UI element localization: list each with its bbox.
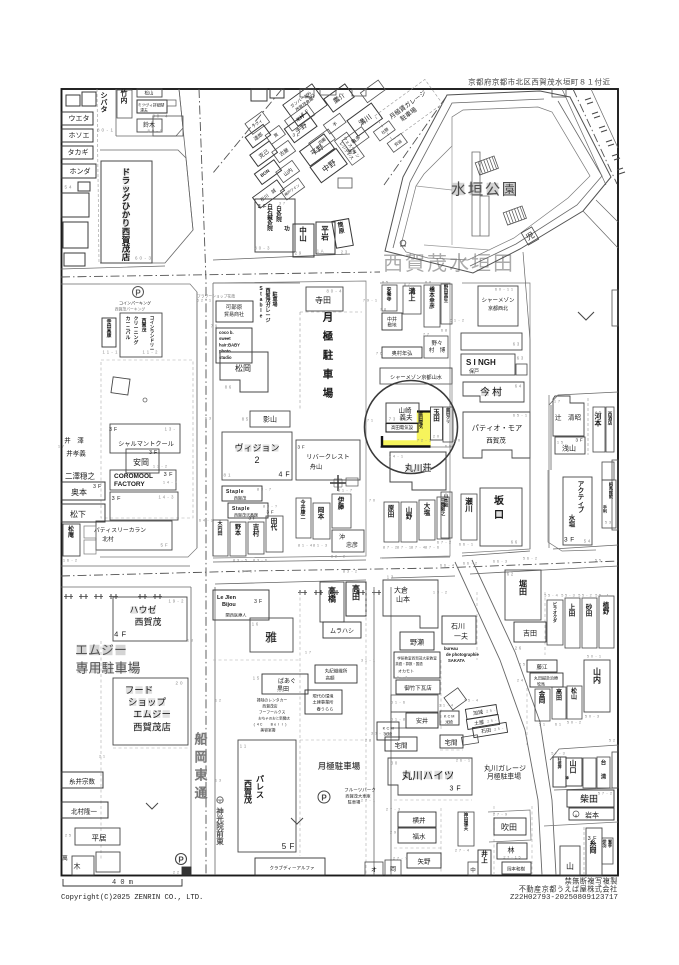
svg-text:88: 88 — [425, 279, 432, 284]
svg-text:掃除のレンタカー: 掃除のレンタカー — [257, 697, 288, 702]
svg-text:オ: オ — [371, 867, 377, 874]
svg-text:87: 87 — [404, 281, 411, 286]
svg-text:御竹下瓦店: 御竹下瓦店 — [404, 684, 432, 692]
svg-text:瀬川: 瀬川 — [464, 496, 473, 514]
svg-text:高額: 高額 — [326, 675, 335, 682]
svg-text:77: 77 — [423, 331, 430, 336]
svg-text:73: 73 — [389, 417, 396, 422]
svg-text:54: 54 — [584, 539, 591, 544]
svg-text:13: 13 — [387, 575, 394, 580]
svg-text:25: 25 — [65, 832, 72, 837]
svg-text:岩本: 岩本 — [585, 811, 599, 820]
svg-text:3F: 3F — [267, 510, 274, 515]
svg-text:52: 52 — [609, 737, 616, 742]
svg-text:20: 20 — [433, 433, 440, 438]
svg-text:舟山: 舟山 — [310, 463, 322, 471]
svg-text:西賀茂: 西賀茂 — [243, 779, 252, 804]
svg-text:63: 63 — [205, 415, 212, 420]
svg-text:寺田: 寺田 — [315, 296, 331, 305]
svg-text:影山: 影山 — [263, 415, 277, 424]
svg-text:高田電気設: 高田電気設 — [391, 424, 414, 431]
svg-text:45: 45 — [595, 409, 602, 414]
svg-text:西賀茂店: 西賀茂店 — [262, 703, 277, 708]
svg-text:松庵: 松庵 — [68, 525, 74, 539]
svg-text:21: 21 — [99, 753, 106, 758]
svg-text:原田: 原田 — [388, 504, 395, 519]
svg-text:山本: 山本 — [396, 595, 410, 604]
svg-text:フード: フード — [125, 685, 154, 696]
svg-text:エムジー: エムジー — [75, 643, 127, 658]
svg-text:3F: 3F — [164, 472, 173, 478]
svg-text:吉村: 吉村 — [253, 522, 260, 538]
svg-text:駐車場: 駐車場 — [271, 291, 277, 308]
svg-text:山本毅: 山本毅 — [443, 493, 449, 509]
svg-text:寺田真康: 寺田真康 — [107, 318, 112, 339]
svg-text:22: 22 — [173, 869, 180, 874]
svg-text:ムラハシ: ムラハシ — [330, 628, 354, 635]
svg-text:71: 71 — [367, 417, 374, 422]
svg-text:coco b.: coco b. — [219, 330, 234, 335]
svg-text:岡: 岡 — [390, 866, 396, 873]
svg-text:水垣: 水垣 — [569, 513, 576, 529]
svg-text:シャルマントクール: シャルマントクール — [118, 441, 174, 448]
svg-text:26: 26 — [515, 646, 522, 651]
svg-text:上田: 上田 — [569, 602, 576, 618]
svg-text:KCM: KCM — [444, 714, 454, 718]
svg-text:松下: 松下 — [70, 509, 86, 519]
svg-text:53: 53 — [605, 519, 612, 524]
svg-text:リバークレスト: リバークレスト — [306, 454, 349, 461]
svg-text:辻 清昭: 辻 清昭 — [555, 412, 581, 421]
svg-text:現代の環境: 現代の環境 — [312, 693, 333, 700]
svg-text:エムジー: エムジー — [133, 709, 171, 720]
svg-text:白石鍼灸院: 白石鍼灸院 — [266, 202, 273, 232]
svg-text:3F: 3F — [576, 438, 583, 443]
svg-text:78: 78 — [380, 306, 387, 311]
svg-text:西賀茂: 西賀茂 — [141, 317, 147, 334]
svg-text:柴田: 柴田 — [580, 793, 598, 804]
svg-text:安井: 安井 — [416, 717, 428, 725]
svg-text:3F: 3F — [298, 445, 305, 450]
svg-text:パティオ・モア: パティオ・モア — [472, 424, 522, 433]
svg-text:ショップ: ショップ — [128, 697, 166, 708]
svg-text:4 0 m: 4 0 m — [112, 879, 133, 887]
svg-text:伊羽: 伊羽 — [602, 838, 607, 848]
svg-text:17: 17 — [554, 398, 561, 403]
svg-text:美容室撥: 美容室撥 — [260, 727, 275, 732]
svg-text:安養寺: 安養寺 — [386, 286, 392, 303]
svg-text:30: 30 — [391, 761, 398, 766]
svg-text:シバタ: シバタ — [101, 92, 108, 114]
svg-text:神光院前東: 神光院前東 — [215, 806, 224, 846]
svg-text:シャーメゾン: シャーメゾン — [481, 297, 515, 304]
svg-text:Staple: Staple — [226, 489, 244, 495]
svg-text:FACTORY: FACTORY — [114, 481, 145, 488]
svg-text:山崎: 山崎 — [399, 405, 412, 414]
svg-text:60: 60 — [454, 437, 461, 442]
svg-text:3F: 3F — [258, 204, 267, 210]
svg-text:敷地: 敷地 — [388, 322, 397, 329]
svg-text:月極駐車場: 月極駐車場 — [487, 771, 521, 780]
svg-text:西賀茂: 西賀茂 — [234, 495, 247, 502]
svg-text:藤江: 藤江 — [536, 663, 548, 671]
svg-text:29: 29 — [390, 829, 397, 834]
svg-text:福水: 福水 — [413, 831, 426, 840]
svg-text:西賀茂ガレージ: 西賀茂ガレージ — [264, 287, 270, 324]
svg-text:studio: studio — [219, 355, 232, 360]
svg-text:12: 12 — [215, 697, 222, 702]
svg-text:禅: 禅 — [564, 775, 569, 780]
svg-text:フーフールクス: フーフールクス — [259, 709, 286, 714]
svg-text:吹田: 吹田 — [501, 822, 517, 832]
svg-text:田代: 田代 — [270, 517, 278, 532]
svg-text:矢野: 矢野 — [418, 856, 431, 865]
svg-text:SAKATA: SAKATA — [448, 658, 465, 663]
svg-text:クラブディーアルファ: クラブディーアルファ — [270, 865, 315, 872]
svg-text:黒田: 黒田 — [277, 686, 289, 693]
svg-text:ハウゼ: ハウゼ — [129, 604, 156, 615]
svg-text:70: 70 — [369, 497, 376, 502]
svg-text:駐車場: 駐車場 — [348, 799, 361, 806]
svg-text:高田: 高田 — [352, 583, 360, 601]
svg-text:野々: 野々 — [431, 339, 442, 347]
svg-text:photo: photo — [219, 349, 231, 354]
svg-text:野本: 野本 — [235, 523, 242, 537]
svg-text:Z22H02793-20250809123717: Z22H02793-20250809123717 — [510, 894, 618, 902]
svg-text:29: 29 — [295, 251, 302, 256]
svg-text:北村: 北村 — [102, 535, 114, 543]
svg-text:3F: 3F — [109, 427, 117, 433]
svg-text:関西医療人: 関西医療人 — [225, 612, 247, 619]
svg-text:木: 木 — [74, 862, 81, 871]
svg-text:28: 28 — [365, 737, 372, 742]
svg-text:カーニバル: カーニバル — [126, 315, 131, 341]
svg-text:オカモト: オカモト — [398, 668, 414, 673]
svg-text:3F: 3F — [254, 599, 262, 605]
svg-text:井 澤: 井 澤 — [64, 435, 84, 444]
svg-text:66: 66 — [511, 540, 518, 545]
svg-text:3F: 3F — [112, 496, 121, 502]
svg-text:西賀茂: 西賀茂 — [486, 435, 506, 444]
svg-text:吉田: 吉田 — [523, 630, 537, 638]
svg-text:野瀬: 野瀬 — [410, 638, 424, 647]
svg-text:松岡: 松岡 — [235, 363, 251, 373]
svg-text:溝上: 溝上 — [409, 287, 416, 303]
svg-text:3F: 3F — [588, 836, 597, 842]
svg-text:17: 17 — [305, 649, 312, 654]
svg-text:英語・算数・国語: 英語・算数・国語 — [395, 661, 423, 666]
svg-text:sweet: sweet — [219, 336, 231, 341]
svg-text:Staple: Staple — [232, 506, 250, 512]
svg-text:山: 山 — [566, 861, 574, 871]
svg-text:63: 63 — [513, 342, 520, 347]
svg-text:糸井宗数: 糸井宗数 — [69, 776, 96, 785]
svg-text:岡本: 岡本 — [318, 506, 325, 521]
svg-text:81: 81 — [224, 473, 231, 478]
svg-text:86: 86 — [225, 385, 232, 390]
svg-text:遥多: 遥多 — [348, 149, 357, 156]
svg-text:85: 85 — [382, 279, 389, 284]
svg-text:15: 15 — [253, 676, 260, 681]
svg-text:パレス: パレス — [256, 773, 264, 799]
svg-text:井孝義: 井孝義 — [66, 448, 86, 457]
svg-text:奥本: 奥本 — [71, 487, 87, 497]
svg-text:(4C Bell): (4C Bell) — [254, 722, 287, 726]
svg-text:横井: 横井 — [413, 815, 426, 824]
svg-text:石川: 石川 — [451, 623, 465, 631]
svg-text:63: 63 — [517, 356, 524, 361]
svg-text:西賀茂パーキング: 西賀茂パーキング — [115, 306, 146, 311]
svg-text:23: 23 — [341, 250, 348, 255]
svg-text:林: 林 — [508, 846, 515, 855]
svg-text:2: 2 — [254, 455, 259, 465]
svg-text:de photographie: de photographie — [446, 652, 479, 657]
svg-text:24: 24 — [517, 677, 524, 682]
svg-text:萬: 萬 — [62, 854, 68, 862]
svg-text:村 博: 村 博 — [429, 346, 446, 354]
svg-text:3F: 3F — [149, 450, 157, 456]
svg-text:松山: 松山 — [145, 90, 154, 97]
svg-text:一夫: 一夫 — [454, 632, 468, 641]
svg-text:bureau: bureau — [444, 646, 458, 651]
svg-text:平岩: 平岩 — [320, 225, 329, 242]
svg-text:高田: 高田 — [556, 688, 562, 702]
svg-text:浅山: 浅山 — [562, 444, 576, 453]
svg-text:S I NGH: S I NGH — [466, 358, 496, 367]
svg-text:牧馬: 牧馬 — [537, 680, 545, 686]
svg-text:堀田: 堀田 — [519, 578, 527, 596]
svg-text:中: 中 — [470, 866, 476, 874]
svg-text:京都西北: 京都西北 — [488, 305, 508, 312]
svg-text:54: 54 — [65, 185, 72, 190]
svg-text:北村隆一: 北村隆一 — [71, 806, 98, 815]
svg-text:20: 20 — [176, 681, 183, 686]
svg-text:雅: 雅 — [265, 629, 277, 644]
svg-text:P: P — [135, 289, 141, 298]
svg-text:ホンダ: ホンダ — [70, 167, 91, 176]
svg-text:功: 功 — [284, 224, 290, 232]
svg-text:37: 37 — [279, 200, 286, 205]
svg-text:Copyright(C)2025 ZENRIN CO., L: Copyright(C)2025 ZENRIN CO., LTD. — [61, 894, 203, 902]
svg-text:Bijou: Bijou — [222, 602, 236, 608]
svg-text:沖: 沖 — [339, 533, 345, 541]
svg-text:ばあぐ: ばあぐ — [278, 677, 296, 685]
svg-text:保戸: 保戸 — [469, 368, 479, 375]
svg-text:丸紀織織所: 丸紀織織所 — [325, 668, 348, 675]
svg-text:宅間: 宅間 — [445, 737, 458, 746]
svg-text:15: 15 — [557, 439, 564, 444]
svg-text:可部原: 可部原 — [226, 303, 243, 311]
svg-text:hair:BABY: hair:BABY — [219, 342, 240, 347]
svg-text:18: 18 — [187, 637, 194, 642]
svg-text:62: 62 — [507, 572, 514, 577]
svg-text:85: 85 — [242, 417, 249, 422]
svg-text:金岡: 金岡 — [538, 689, 546, 705]
svg-text:月極駐車場: 月極駐車場 — [318, 761, 361, 771]
svg-text:ドラッグひかり西賀茂店: ドラッグひかり西賀茂店 — [121, 167, 131, 262]
svg-text:松山: 松山 — [571, 687, 577, 701]
svg-text:高橋: 高橋 — [328, 585, 337, 603]
svg-text:16: 16 — [252, 622, 259, 627]
svg-text:西賀茂: 西賀茂 — [134, 616, 161, 627]
svg-text:69: 69 — [445, 443, 452, 448]
svg-text:13-: 13- — [165, 427, 176, 432]
svg-text:白灸院: 白灸院 — [276, 204, 282, 223]
svg-text:Le Jlen: Le Jlen — [217, 595, 237, 601]
svg-text:不動産京都うえば屋株式会社: 不動産京都うえば屋株式会社 — [519, 885, 617, 894]
svg-text:植野: 植野 — [602, 600, 610, 616]
svg-text:11: 11 — [240, 744, 247, 749]
svg-text:土建事業所: 土建事業所 — [312, 699, 333, 706]
svg-text:P: P — [178, 856, 184, 865]
svg-text:COROMOOL: COROMOOL — [114, 473, 153, 480]
svg-text:コインランドリー: コインランドリー — [150, 316, 155, 353]
svg-text:春うらら: 春うらら — [317, 706, 334, 713]
svg-text:ヴィジョン: ヴィジョン — [234, 442, 279, 453]
svg-text:P: P — [321, 794, 327, 803]
svg-text:鷲亭: 鷲亭 — [608, 838, 612, 848]
svg-text:大塩: 大塩 — [424, 501, 431, 517]
svg-text:神田達夫: 神田達夫 — [464, 812, 469, 833]
svg-text:純風館飲: 純風館飲 — [608, 480, 614, 500]
svg-text:山野: 山野 — [406, 505, 413, 521]
svg-text:竹内: 竹内 — [120, 89, 128, 105]
svg-text:京都府京都市北区西賀茂水垣町８１付近: 京都府京都市北区西賀茂水垣町８１付近 — [468, 77, 610, 87]
svg-text:義夫: 義夫 — [400, 412, 413, 421]
svg-text:55: 55 — [595, 557, 602, 562]
svg-text:砂田: 砂田 — [586, 602, 593, 618]
svg-text:二澤穏之: 二澤穏之 — [65, 471, 95, 481]
svg-text:達夫: 達夫 — [140, 107, 148, 112]
svg-text:平居: 平居 — [91, 834, 107, 843]
svg-text:68: 68 — [441, 327, 448, 332]
svg-text:岡本和樹: 岡本和樹 — [507, 866, 526, 873]
svg-text:25: 25 — [519, 661, 526, 666]
svg-text:野田昌生: 野田昌生 — [444, 284, 449, 305]
svg-text:76: 76 — [376, 350, 383, 355]
svg-text:忠彦: 忠彦 — [346, 541, 358, 549]
svg-text:丸川ハイツ: 丸川ハイツ — [402, 769, 455, 782]
svg-text:奥村年弘: 奥村年弘 — [392, 349, 413, 357]
svg-text:宅間: 宅間 — [395, 740, 408, 749]
svg-text:高田電気: 高田電気 — [419, 411, 423, 429]
svg-text:貿易商社: 貿易商社 — [224, 311, 244, 318]
svg-text:1A: 1A — [317, 249, 324, 254]
svg-text:大倉: 大倉 — [394, 586, 408, 595]
svg-text:丸川荘: 丸川荘 — [404, 462, 431, 473]
svg-text:13: 13 — [215, 777, 222, 782]
svg-text:3F: 3F — [93, 484, 101, 490]
svg-text:シャーメゾン京都山水: シャーメゾン京都山水 — [390, 373, 443, 381]
svg-text:ホソエ: ホソエ — [69, 132, 90, 140]
svg-text:井上: 井上 — [481, 849, 488, 865]
svg-text:パティスリーカラン: パティスリーカラン — [94, 527, 146, 534]
svg-text:学研教室西賀茂大家教室: 学研教室西賀茂大家教室 — [397, 655, 437, 660]
svg-text:61: 61 — [555, 721, 562, 726]
svg-text:丸田鍼灸治療: 丸田鍼灸治療 — [534, 674, 558, 680]
svg-text:中山: 中山 — [299, 225, 307, 243]
svg-text:ミツヴィ詳細辯: ミツヴィ詳細辯 — [138, 102, 165, 107]
svg-text:51: 51 — [539, 721, 546, 726]
svg-text:64: 64 — [515, 384, 522, 389]
svg-text:伊藤: 伊藤 — [337, 495, 345, 511]
svg-text:コインパーキング: コインパーキング — [119, 299, 151, 305]
svg-text:今井康二: 今井康二 — [299, 499, 306, 521]
svg-text:17: 17 — [58, 443, 65, 448]
svg-text:社領押: 社領押 — [557, 757, 562, 770]
svg-text:西賀茂店: 西賀茂店 — [133, 721, 171, 733]
svg-text:安岡: 安岡 — [133, 457, 149, 467]
svg-text:専用駐車場: 専用駐車場 — [75, 661, 140, 676]
svg-text:タカギ: タカギ — [68, 148, 89, 157]
svg-text:5F: 5F — [161, 543, 168, 548]
svg-text:大内田: 大内田 — [217, 520, 222, 537]
svg-text:アクティブ: アクティブ — [578, 480, 585, 514]
svg-text:ウエタ: ウエタ — [69, 114, 90, 123]
svg-text:山口: 山口 — [570, 759, 577, 775]
svg-text:クリーニング: クリーニング — [134, 315, 139, 346]
svg-text:3F: 3F — [249, 516, 256, 521]
svg-text:玉田: 玉田 — [433, 408, 440, 423]
svg-text:おちゃのおと新聞店: おちゃのおと新聞店 — [258, 715, 290, 720]
svg-text:丸川ガレージ: 丸川ガレージ — [484, 764, 526, 773]
svg-text:扇田クリ: 扇田クリ — [446, 406, 450, 424]
svg-text:鳥介: 鳥介 — [305, 93, 315, 100]
svg-text:3F: 3F — [293, 133, 300, 138]
svg-text:山内: 山内 — [593, 666, 601, 684]
svg-text:西酒店: 西酒店 — [608, 411, 613, 427]
svg-text:米崎: 米崎 — [445, 719, 453, 724]
svg-text:橋本幸彦: 橋本幸彦 — [429, 285, 435, 310]
